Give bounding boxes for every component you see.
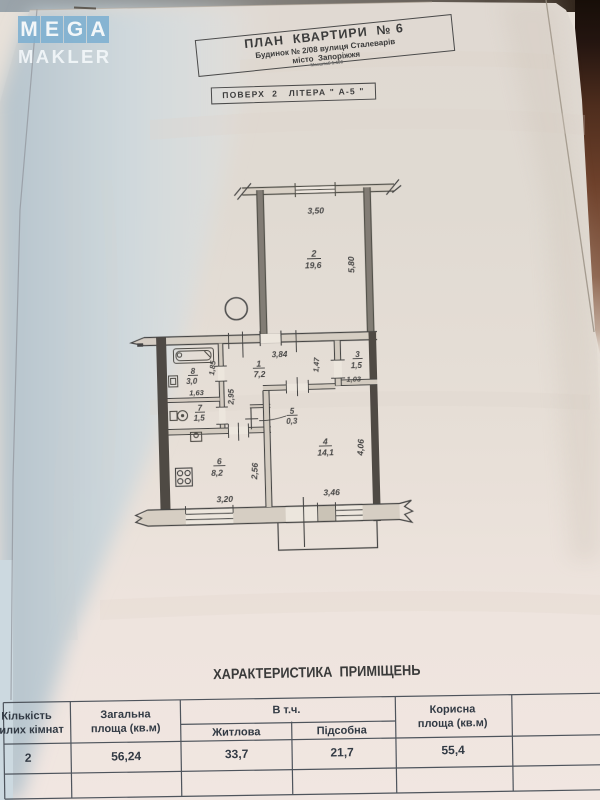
svg-text:7,2: 7,2 [253,369,265,379]
svg-text:19,6: 19,6 [305,260,322,270]
svg-text:3,46: 3,46 [323,487,340,497]
svg-text:5,80: 5,80 [346,256,356,273]
svg-text:56,24: 56,24 [111,749,142,763]
svg-text:В т.ч.: В т.ч. [272,704,300,716]
svg-text:8: 8 [191,367,196,376]
svg-text:55,4: 55,4 [441,743,465,757]
svg-text:3,50: 3,50 [307,205,324,215]
svg-text:2,95: 2,95 [227,388,236,405]
svg-text:0,3: 0,3 [286,417,298,426]
svg-text:3,0: 3,0 [186,377,198,386]
svg-text:8,2: 8,2 [211,468,223,478]
svg-text:7: 7 [198,404,203,413]
svg-text:2: 2 [310,249,316,259]
svg-text:21,7: 21,7 [330,745,354,759]
svg-text:1,85: 1,85 [207,359,218,375]
svg-text:6: 6 [217,456,222,466]
svg-text:3,84: 3,84 [272,350,288,359]
svg-text:5: 5 [290,407,295,416]
svg-text:1,47: 1,47 [311,357,321,373]
svg-text:Кількість: Кількість [1,710,52,723]
svg-text:4: 4 [322,436,328,446]
svg-text:3,20: 3,20 [216,494,233,504]
svg-text:жилих кімнат: жилих кімнат [0,724,65,737]
svg-text:Житлова: Житлова [211,726,261,739]
svg-text:Корисна: Корисна [429,703,476,716]
svg-text:Загальна: Загальна [100,708,151,721]
svg-text:2: 2 [25,751,32,765]
svg-text:площа (кв.м): площа (кв.м) [91,722,161,735]
svg-text:33,7: 33,7 [225,747,249,761]
svg-text:площа (кв.м): площа (кв.м) [418,717,488,730]
svg-text:2,56: 2,56 [249,462,260,480]
svg-text:1,5: 1,5 [193,414,205,423]
svg-text:14,1: 14,1 [317,447,334,457]
svg-text:1,5: 1,5 [351,361,363,370]
svg-text:3: 3 [355,350,360,359]
svg-text:1,63: 1,63 [189,388,205,397]
svg-text:1: 1 [256,359,261,369]
svg-text:Підсобна: Підсобна [317,724,368,737]
svg-text:4,06: 4,06 [355,439,366,457]
svg-text:1,03: 1,03 [346,374,362,383]
